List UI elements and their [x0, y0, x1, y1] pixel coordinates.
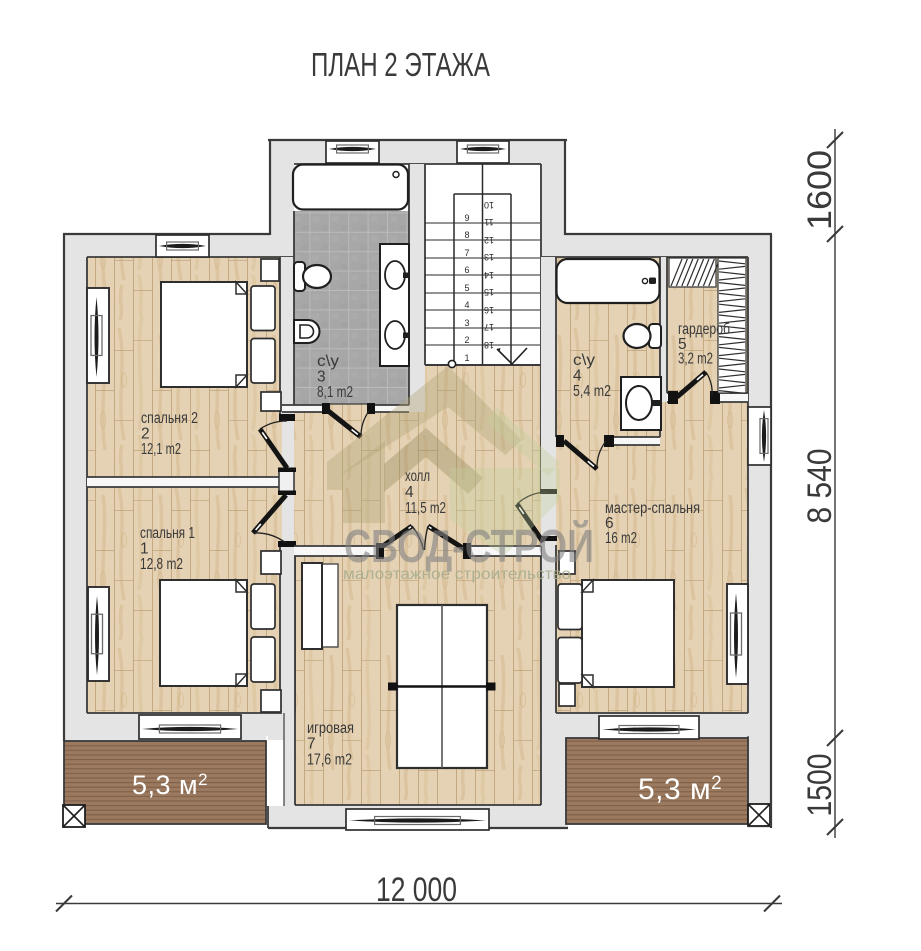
svg-text:5,3 м2: 5,3 м2 [638, 773, 722, 806]
svg-text:1: 1 [140, 541, 149, 558]
svg-text:4: 4 [573, 368, 582, 385]
svg-text:15: 15 [484, 287, 494, 297]
svg-text:16: 16 [484, 305, 494, 315]
svg-text:СВОД-СТРОЙ: СВОД-СТРОЙ [344, 520, 594, 572]
svg-text:5: 5 [464, 283, 469, 293]
svg-text:11,5 m2: 11,5 m2 [405, 500, 446, 517]
svg-text:4: 4 [464, 300, 469, 310]
svg-text:ПЛАН 2 ЭТАЖА: ПЛАН 2 ЭТАЖА [311, 46, 490, 83]
svg-text:спальня 2: спальня 2 [141, 410, 198, 427]
svg-text:мастер-спальня: мастер-спальня [605, 500, 700, 517]
svg-text:2: 2 [141, 426, 150, 443]
svg-text:17: 17 [484, 322, 494, 332]
svg-text:8,1 m2: 8,1 m2 [317, 384, 353, 401]
svg-text:12 000: 12 000 [376, 871, 457, 909]
svg-text:12,8 m2: 12,8 m2 [140, 556, 183, 573]
svg-text:1500: 1500 [801, 754, 839, 817]
svg-text:3,2 m2: 3,2 m2 [678, 351, 713, 368]
svg-text:4: 4 [405, 484, 414, 501]
svg-text:12,1 m2: 12,1 m2 [141, 441, 181, 458]
svg-text:5,4 m2: 5,4 m2 [573, 383, 611, 400]
svg-text:8 540: 8 540 [801, 449, 839, 524]
svg-text:холл: холл [405, 468, 430, 485]
svg-text:7: 7 [307, 736, 316, 753]
svg-text:10: 10 [484, 200, 494, 210]
svg-text:с\у: с\у [317, 353, 339, 370]
svg-text:малоэтажное строительство: малоэтажное строительство [343, 566, 571, 583]
svg-text:14: 14 [484, 270, 494, 280]
svg-text:12: 12 [484, 235, 494, 245]
svg-text:6: 6 [464, 265, 469, 275]
svg-text:11: 11 [484, 217, 493, 227]
svg-text:9: 9 [464, 213, 469, 223]
svg-text:3: 3 [317, 369, 326, 386]
svg-text:16 m2: 16 m2 [605, 530, 637, 547]
svg-text:1600: 1600 [801, 150, 839, 230]
svg-text:с\у: с\у [573, 352, 595, 369]
svg-text:5,3 м2: 5,3 м2 [132, 770, 208, 800]
svg-text:3: 3 [464, 318, 469, 328]
svg-text:1: 1 [464, 353, 469, 363]
svg-text:13: 13 [484, 252, 494, 262]
svg-text:18: 18 [484, 340, 494, 350]
svg-text:игровая: игровая [307, 720, 354, 737]
svg-text:17,6 m2: 17,6 m2 [307, 752, 352, 769]
svg-text:2: 2 [464, 335, 469, 345]
svg-text:7: 7 [464, 248, 469, 258]
svg-text:8: 8 [464, 230, 469, 240]
svg-text:спальня 1: спальня 1 [140, 525, 195, 542]
